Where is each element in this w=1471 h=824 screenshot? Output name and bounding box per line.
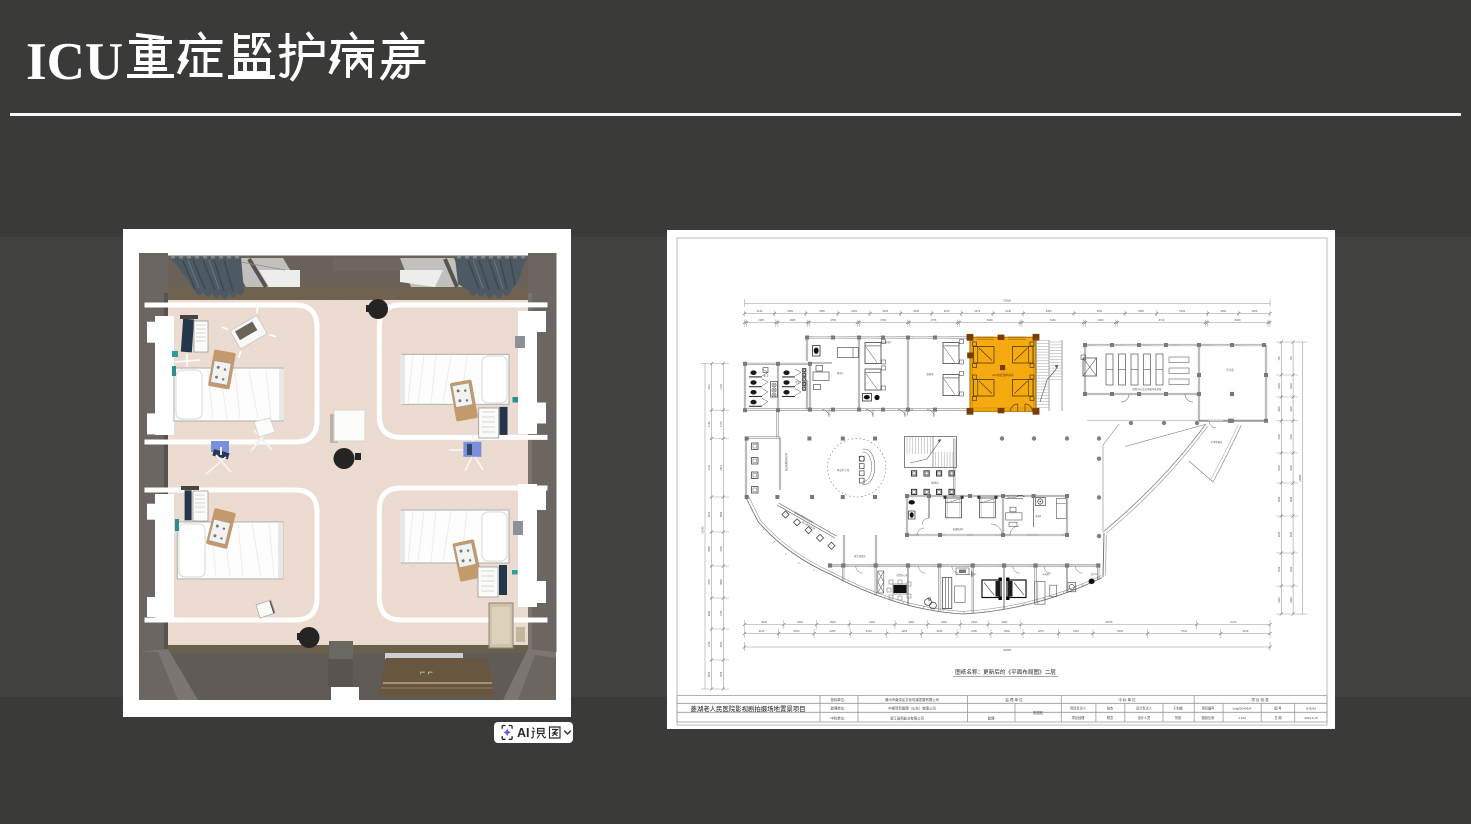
svg-text:图纸比例: 图纸比例 bbox=[1202, 715, 1215, 720]
svg-text:3645: 3645 bbox=[1278, 531, 1281, 537]
svg-text:医生更衣区: 医生更衣区 bbox=[854, 554, 866, 558]
svg-text:鲁俊: 鲁俊 bbox=[1175, 715, 1182, 720]
svg-text:52900: 52900 bbox=[1003, 648, 1011, 652]
svg-text:2900: 2900 bbox=[1278, 465, 1281, 471]
svg-text:6100: 6100 bbox=[1050, 318, 1056, 322]
svg-text:日 期: 日 期 bbox=[1274, 715, 1281, 720]
svg-text:2300: 2300 bbox=[1278, 566, 1281, 572]
svg-text:3279: 3279 bbox=[1038, 629, 1044, 633]
svg-text:监理单位：: 监理单位： bbox=[831, 706, 848, 711]
svg-text:环岛护士站: 环岛护士站 bbox=[837, 468, 850, 472]
svg-text:手术室: 手术室 bbox=[1226, 368, 1234, 372]
svg-text:1825: 1825 bbox=[720, 671, 723, 677]
svg-text:项目经理: 项目经理 bbox=[1072, 715, 1086, 720]
svg-text:4763: 4763 bbox=[880, 318, 886, 322]
svg-text:700: 700 bbox=[1290, 356, 1293, 361]
svg-text:2540: 2540 bbox=[971, 620, 977, 624]
svg-text:监理: 监理 bbox=[988, 715, 995, 720]
svg-text:I2-B281: I2-B281 bbox=[1306, 707, 1317, 711]
svg-text:5880: 5880 bbox=[720, 511, 723, 517]
svg-text:2300: 2300 bbox=[1290, 566, 1293, 572]
svg-text:3000: 3000 bbox=[797, 620, 803, 624]
svg-text:湖州市南浔区文化传媒发展有限公司: 湖州市南浔区文化传媒发展有限公司 bbox=[885, 697, 939, 702]
svg-text:3625: 3625 bbox=[720, 641, 723, 647]
svg-text:5300: 5300 bbox=[1046, 309, 1052, 313]
svg-text:3350: 3350 bbox=[830, 629, 836, 633]
svg-text:男卫: 男卫 bbox=[795, 380, 800, 384]
svg-text:3300: 3300 bbox=[1138, 309, 1144, 313]
svg-text:5321: 5321 bbox=[1097, 309, 1103, 313]
svg-text:2905: 2905 bbox=[758, 318, 764, 322]
svg-text:2900: 2900 bbox=[1290, 465, 1293, 471]
svg-text:6300: 6300 bbox=[1278, 383, 1281, 389]
svg-text:2905: 2905 bbox=[790, 318, 796, 322]
svg-text:3000: 3000 bbox=[830, 620, 836, 624]
svg-text:3140: 3140 bbox=[759, 629, 765, 633]
svg-text:2600: 2600 bbox=[1278, 496, 1281, 502]
svg-text:诊室2: 诊室2 bbox=[1035, 514, 1042, 518]
svg-text:2910: 2910 bbox=[708, 511, 711, 517]
svg-text:6723: 6723 bbox=[1181, 629, 1187, 633]
svg-text:2140: 2140 bbox=[720, 421, 723, 427]
svg-text:1700: 1700 bbox=[720, 610, 723, 616]
svg-text:普通病房1: 普通病房1 bbox=[953, 527, 965, 531]
svg-text:23960: 23960 bbox=[1298, 474, 1302, 482]
svg-text:3146: 3146 bbox=[1005, 309, 1011, 313]
svg-text:5306: 5306 bbox=[1179, 309, 1185, 313]
svg-text:3140: 3140 bbox=[757, 309, 763, 313]
svg-text:700: 700 bbox=[1278, 356, 1281, 361]
svg-text:3105: 3105 bbox=[944, 309, 950, 313]
svg-text:中视项目管理（山东）有限公司: 中视项目管理（山东）有限公司 bbox=[888, 706, 935, 711]
svg-text:2910: 2910 bbox=[720, 464, 723, 470]
svg-text:监 理 单 位: 监 理 单 位 bbox=[1005, 697, 1023, 702]
svg-text:5000: 5000 bbox=[1117, 629, 1123, 633]
svg-text:菱湖老人民医院影视剧拍摄场地置景项目: 菱湖老人民医院影视剧拍摄场地置景项目 bbox=[690, 704, 805, 713]
svg-text:4519: 4519 bbox=[1243, 629, 1249, 633]
svg-text:2025: 2025 bbox=[1278, 597, 1281, 603]
svg-text:vip病房1: vip病房1 bbox=[1042, 572, 1051, 576]
svg-text:3250: 3250 bbox=[787, 309, 793, 313]
svg-text:6300: 6300 bbox=[1290, 383, 1293, 389]
svg-text:项目编号: 项目编号 bbox=[1202, 706, 1215, 711]
svg-text:ICU重症监护病房: ICU重症监护病房 bbox=[992, 373, 1014, 377]
svg-text:3279: 3279 bbox=[974, 309, 980, 313]
svg-text:4321: 4321 bbox=[708, 383, 711, 389]
svg-text:ICU: ICU bbox=[26, 33, 123, 91]
svg-text:2140: 2140 bbox=[708, 464, 711, 470]
svg-text:3250: 3250 bbox=[794, 629, 800, 633]
svg-text:浙江省和影业有限公司: 浙江省和影业有限公司 bbox=[890, 715, 924, 720]
svg-text:6723: 6723 bbox=[1231, 620, 1237, 624]
svg-text:2960: 2960 bbox=[1098, 318, 1104, 322]
svg-text:设计人员: 设计人员 bbox=[1138, 715, 1151, 720]
svg-text:4200: 4200 bbox=[869, 620, 875, 624]
svg-text:3750: 3750 bbox=[720, 546, 723, 552]
svg-text:2024.6.13: 2024.6.13 bbox=[1304, 716, 1318, 720]
svg-text:6000: 6000 bbox=[987, 318, 993, 322]
svg-text:女卫: 女卫 bbox=[764, 374, 769, 378]
svg-text:23145: 23145 bbox=[701, 526, 705, 534]
svg-text:3146: 3146 bbox=[1073, 629, 1079, 633]
svg-text:1:120: 1:120 bbox=[1238, 716, 1246, 720]
svg-text:陪护休息2: 陪护休息2 bbox=[881, 340, 892, 344]
svg-text:设计负责人: 设计负责人 bbox=[1136, 706, 1153, 711]
svg-text:输液区: 输液区 bbox=[931, 481, 939, 485]
svg-text:2940: 2940 bbox=[1004, 629, 1010, 633]
svg-text:中 标 单 位: 中 标 单 位 bbox=[1118, 697, 1136, 702]
svg-text:52900: 52900 bbox=[1003, 299, 1011, 303]
svg-text:中标单位：: 中标单位： bbox=[831, 715, 848, 720]
svg-text:3000: 3000 bbox=[941, 620, 947, 624]
svg-text:张杰: 张杰 bbox=[1107, 706, 1114, 711]
svg-text:3250: 3250 bbox=[1220, 309, 1226, 313]
svg-text:高压氧舱区候诊区: 高压氧舱区候诊区 bbox=[784, 452, 788, 471]
svg-text:hzqj20240324: hzqj20240324 bbox=[1233, 707, 1252, 711]
svg-text:6960: 6960 bbox=[708, 610, 711, 616]
svg-text:6960: 6960 bbox=[720, 579, 723, 585]
svg-text:3750: 3750 bbox=[708, 579, 711, 585]
svg-text:3250: 3250 bbox=[1252, 309, 1258, 313]
svg-text:7250: 7250 bbox=[1290, 434, 1293, 440]
svg-text:洗手间: 洗手间 bbox=[1091, 572, 1098, 576]
svg-text:3246: 3246 bbox=[937, 629, 943, 633]
svg-text:7250: 7250 bbox=[1278, 434, 1281, 440]
svg-text:图 号: 图 号 bbox=[1274, 706, 1281, 711]
svg-text:3246: 3246 bbox=[913, 309, 919, 313]
svg-text:医院办公会议用临时休息室: 医院办公会议用临时休息室 bbox=[1133, 387, 1162, 391]
svg-text:总经办公室: 总经办公室 bbox=[896, 573, 908, 577]
svg-text:3603: 3603 bbox=[761, 620, 767, 624]
svg-text:于利峰: 于利峰 bbox=[1173, 706, 1183, 711]
svg-text:3319: 3319 bbox=[866, 629, 872, 633]
svg-text:发国权: 发国权 bbox=[1033, 710, 1044, 715]
svg-text:16135: 16135 bbox=[1105, 620, 1113, 624]
svg-text:3000: 3000 bbox=[908, 620, 914, 624]
svg-text:项 目 信 息: 项 目 信 息 bbox=[1251, 697, 1269, 702]
svg-text:休息1: 休息1 bbox=[837, 371, 844, 375]
svg-text:2825: 2825 bbox=[1290, 406, 1293, 412]
svg-text:⌐ ⌐: ⌐ ⌐ bbox=[420, 667, 433, 677]
svg-text:联富: 联富 bbox=[1107, 715, 1113, 720]
svg-text:项目负责人: 项目负责人 bbox=[1070, 706, 1087, 711]
svg-text:手术等候区: 手术等候区 bbox=[1211, 440, 1224, 444]
svg-text:3203: 3203 bbox=[882, 309, 888, 313]
svg-text:2825: 2825 bbox=[1278, 406, 1281, 412]
svg-text:4765: 4765 bbox=[931, 318, 937, 322]
svg-text:AI: AI bbox=[517, 726, 530, 740]
svg-text:急救室: 急救室 bbox=[926, 372, 934, 376]
svg-text:5880: 5880 bbox=[708, 546, 711, 552]
svg-text:2600: 2600 bbox=[1290, 496, 1293, 502]
svg-text:3000: 3000 bbox=[1002, 620, 1008, 624]
svg-text:4765: 4765 bbox=[830, 318, 836, 322]
svg-text:3350: 3350 bbox=[819, 309, 825, 313]
svg-text:2025: 2025 bbox=[1290, 597, 1293, 603]
svg-text:3203: 3203 bbox=[901, 629, 907, 633]
svg-text:3625: 3625 bbox=[708, 671, 711, 677]
svg-text:1700: 1700 bbox=[708, 641, 711, 647]
svg-text:投标单位：: 投标单位： bbox=[831, 697, 848, 702]
svg-text:4130: 4130 bbox=[720, 383, 723, 389]
svg-text:4130: 4130 bbox=[708, 421, 711, 427]
svg-text:6000: 6000 bbox=[1235, 318, 1241, 322]
svg-text:图纸名称：更新后的《平面布局图》二层: 图纸名称：更新后的《平面布局图》二层 bbox=[955, 668, 1056, 676]
svg-text:3105: 3105 bbox=[971, 629, 977, 633]
svg-text:3645: 3645 bbox=[1290, 531, 1293, 537]
svg-text:8710: 8710 bbox=[1159, 318, 1165, 322]
svg-text:3329: 3329 bbox=[851, 309, 857, 313]
